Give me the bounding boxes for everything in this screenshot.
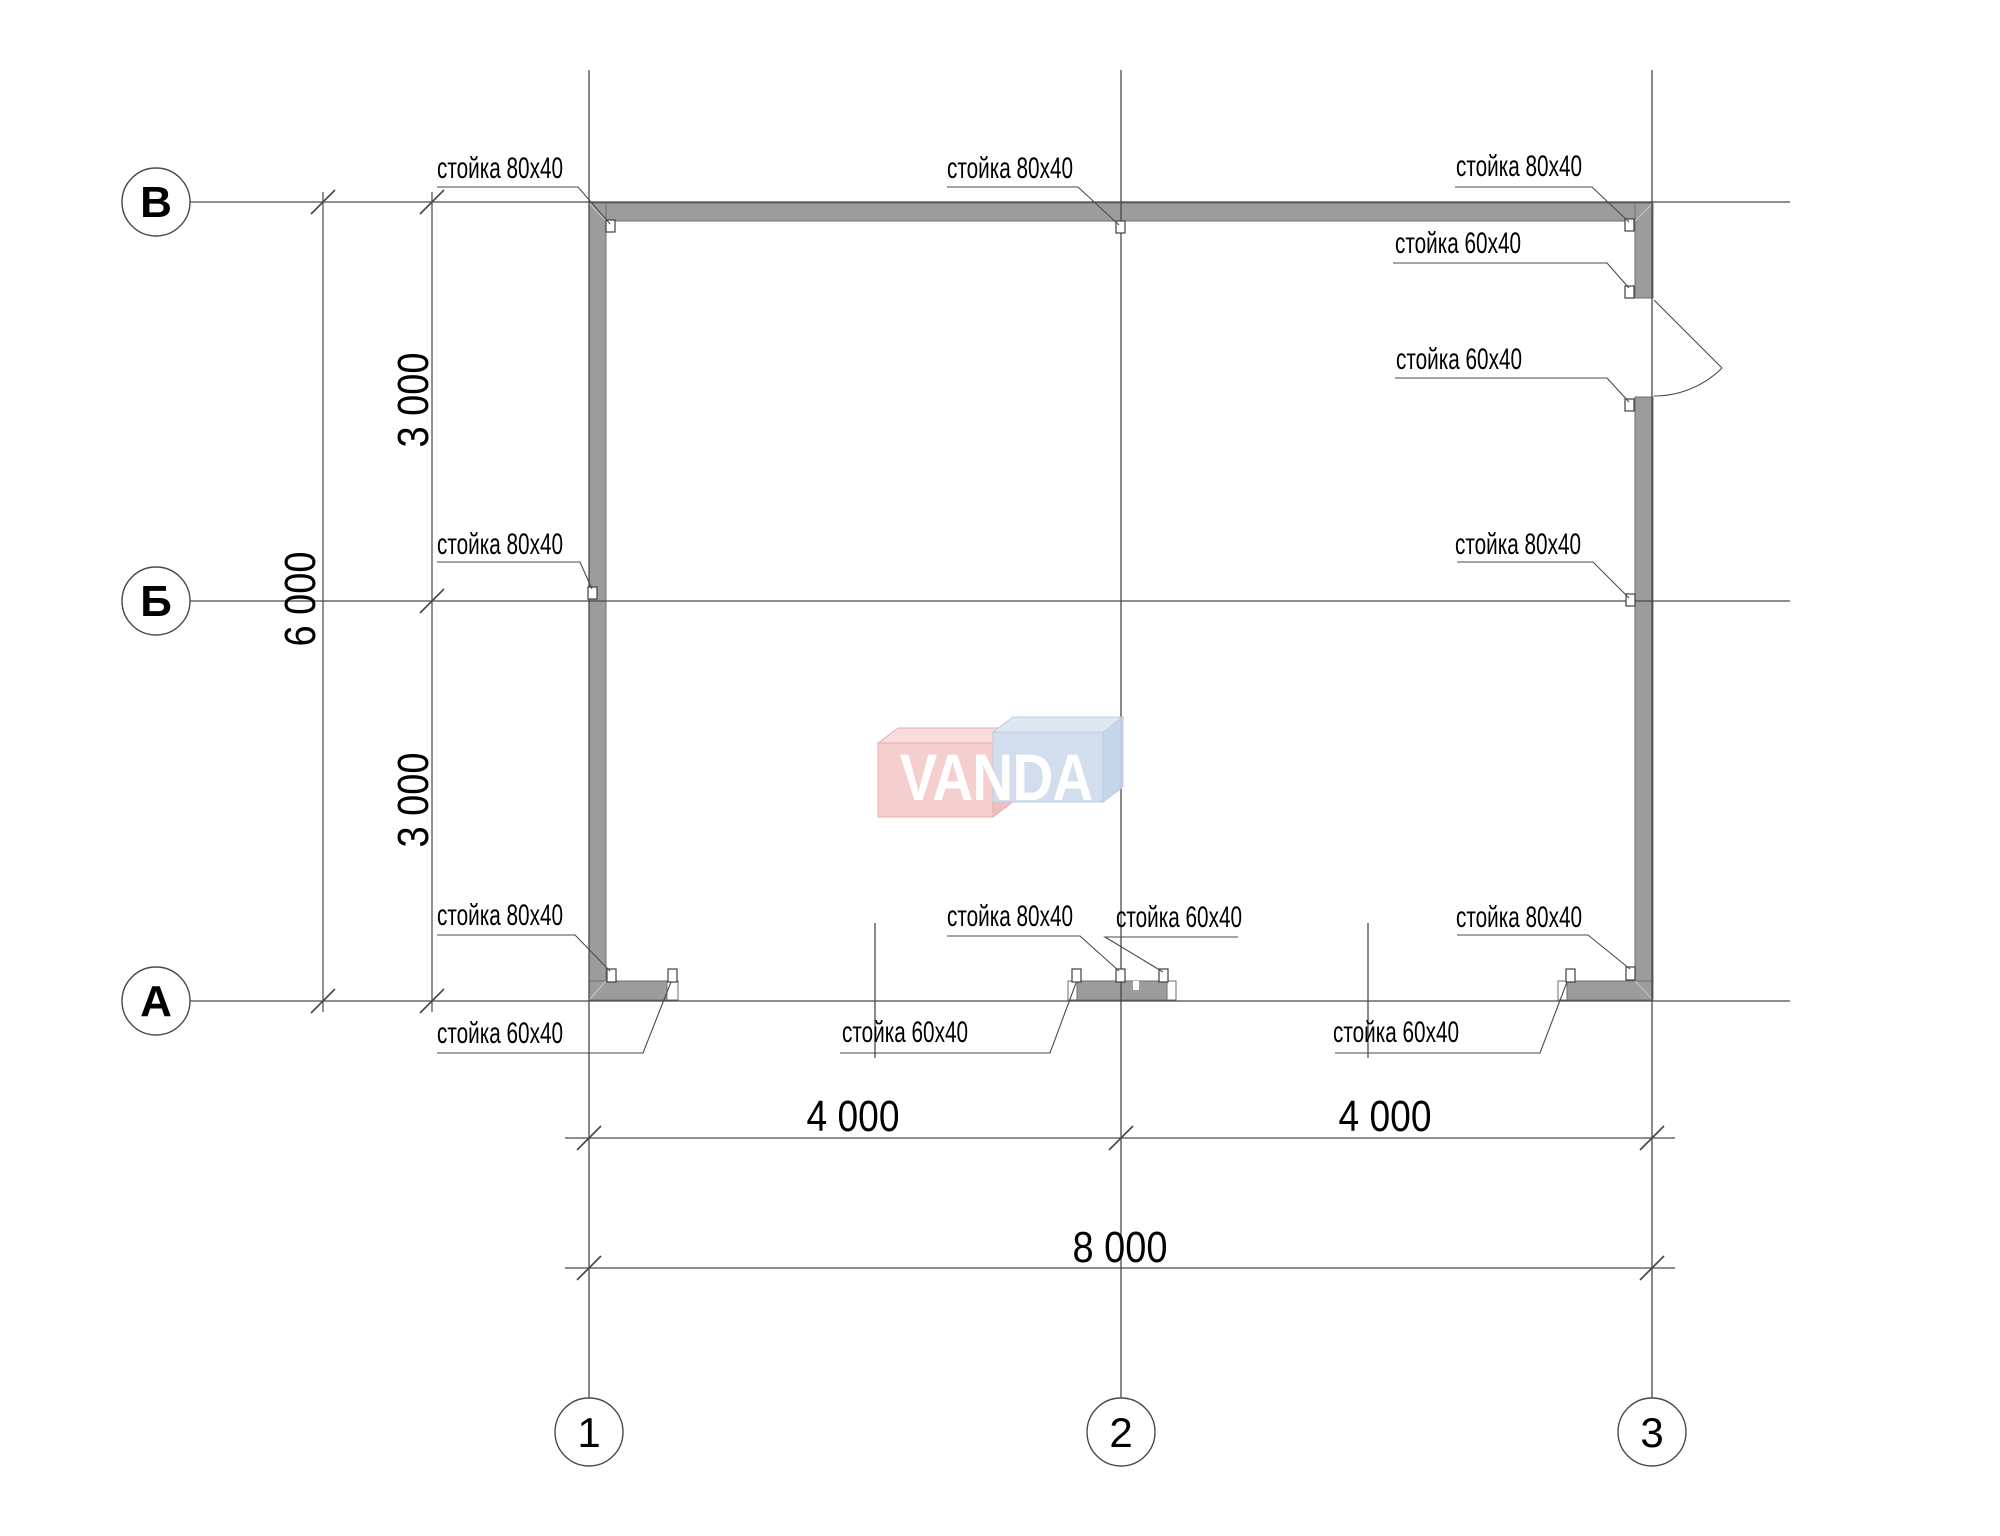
axis-label-col-3: 3 (1640, 1409, 1663, 1456)
axis-label-row-Bb: Б (140, 577, 172, 626)
stud-label-mid-right: стойка 80х40 (1455, 528, 1581, 561)
stud-label-texts: стойка 80х40 стойка 80х40 стойка 80х40 с… (437, 150, 1582, 1050)
dim-left-total: 6 000 (276, 552, 325, 647)
post-door-lower-jamb (1625, 399, 1634, 411)
wall-right-lower (1635, 397, 1653, 1000)
wall-right-upper (1635, 203, 1653, 298)
dim-left-span-top: 3 000 (389, 353, 438, 448)
stud-label-top-right: стойка 80х40 (1456, 150, 1582, 183)
wall-bottom-left-segment (589, 981, 667, 1000)
post-bottom-left-end (668, 969, 677, 982)
stud-label-sill-mid-60: стойка 60х40 (842, 1016, 968, 1049)
dim-bottom-span-right: 4 000 (1339, 1092, 1432, 1141)
post-bottom-mid-left (1072, 969, 1081, 982)
vanda-blue-side-face (1103, 717, 1123, 802)
stud-label-door-upper: стойка 60х40 (1395, 227, 1521, 260)
post-top-left-corner (606, 220, 615, 232)
post-door-upper-jamb (1625, 286, 1634, 298)
dim-left-span-bottom: 3 000 (389, 753, 438, 848)
axis-label-col-2: 2 (1109, 1409, 1132, 1456)
vanda-logo-text: VANDA (900, 740, 1093, 814)
stud-label-sill-left-60: стойка 60х40 (437, 1017, 563, 1050)
axis-label-row-B: В (140, 178, 172, 227)
post-bottom-right-end (1566, 969, 1575, 982)
post-left-axisB (588, 587, 597, 599)
floor-plan-canvas: 3 000 3 000 6 000 4 000 4 000 8 000 стой… (0, 0, 2000, 1536)
floor-plan-page: 3 000 3 000 6 000 4 000 4 000 8 000 стой… (0, 0, 2000, 1536)
dim-bottom-span-left: 4 000 (807, 1092, 900, 1141)
stud-label-bottom-mid-80: стойка 80х40 (947, 900, 1073, 933)
vanda-blue-top-face (993, 717, 1123, 732)
post-top-right-corner (1625, 219, 1634, 231)
stud-label-top-left: стойка 80х40 (437, 152, 563, 185)
stud-label-bottom-mid-60: стойка 60х40 (1116, 901, 1242, 934)
stud-label-door-lower: стойка 60х40 (1396, 343, 1522, 376)
wall-bottom-middle-segment (1077, 981, 1167, 1000)
door-swing (1654, 300, 1722, 396)
axis-label-col-1: 1 (577, 1409, 600, 1456)
stud-label-bottom-left-80: стойка 80х40 (437, 899, 563, 932)
door-arc (1654, 368, 1722, 396)
axis-label-row-A: А (140, 977, 172, 1026)
stud-label-top-mid: стойка 80х40 (947, 152, 1073, 185)
stud-label-sill-right-60: стойка 60х40 (1333, 1016, 1459, 1049)
stud-label-mid-left: стойка 80х40 (437, 528, 563, 561)
door-leaf (1654, 300, 1722, 368)
vanda-logo: VANDA (878, 717, 1123, 817)
wall-notch (1133, 981, 1139, 990)
wall-bottom-right-segment (1567, 981, 1653, 1000)
dimension-texts: 3 000 3 000 6 000 4 000 4 000 8 000 (276, 353, 1432, 1273)
stud-label-bottom-right-80: стойка 80х40 (1456, 901, 1582, 934)
post-bottom-right-wall (1626, 967, 1635, 980)
post-bottom-mid-axis2 (1116, 969, 1125, 982)
dim-bottom-total: 8 000 (1073, 1223, 1168, 1272)
post-bottom-left-wall (607, 969, 616, 982)
